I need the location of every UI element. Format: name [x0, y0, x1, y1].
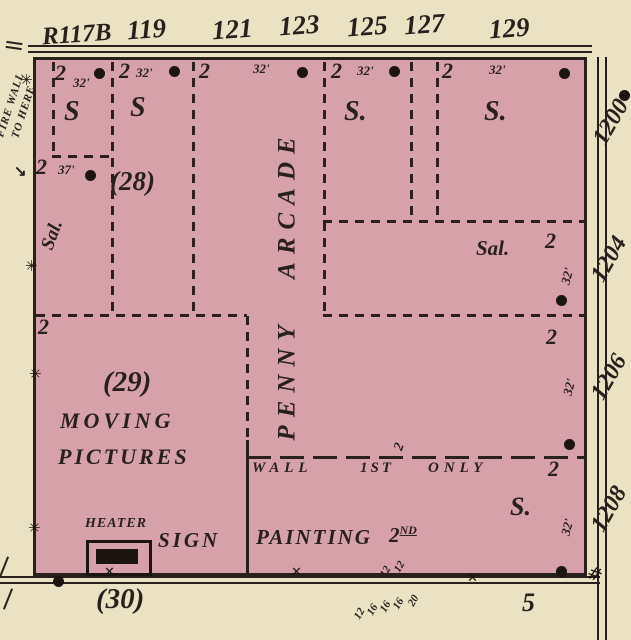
story-count: 2	[55, 62, 66, 84]
depth-dimension: 32'	[73, 76, 90, 89]
arcade-name-label: PENNY ARCADE	[275, 129, 300, 440]
wall-opening-dot	[556, 295, 567, 306]
fire-wall-marker-icon: ✳	[28, 521, 41, 536]
edge-mark	[3, 588, 13, 609]
lot-number: 5	[522, 590, 535, 616]
wall-opening-dot	[389, 66, 400, 77]
street-address: 127	[403, 10, 445, 40]
use-label-moving: MOVING	[60, 410, 174, 432]
store-use-label: S.	[510, 494, 531, 520]
street-address: R117B	[41, 20, 112, 50]
depth-dimension: 32'	[489, 63, 506, 76]
fire-wall-marker-icon: ✕	[291, 566, 302, 579]
partition-line	[410, 62, 413, 222]
wall-note-word: WALL	[252, 461, 313, 476]
wall-opening-dot	[94, 68, 105, 79]
story-count: 2	[548, 458, 559, 480]
street-address: 129	[488, 14, 530, 44]
heater-label: HEATER	[85, 517, 147, 531]
wall-opening-dot	[53, 576, 64, 587]
depth-dimension: 37'	[58, 163, 75, 176]
partition-line	[52, 155, 112, 158]
parcel-number: (29)	[103, 368, 151, 397]
fire-wall-marker-icon: ✕	[467, 572, 478, 585]
partition-line	[36, 314, 247, 317]
store-use-label: S.	[344, 98, 367, 126]
wall-opening-dot	[559, 68, 570, 79]
partition-line	[323, 314, 585, 317]
street-address: 1200	[589, 95, 631, 149]
use-label-pictures: PICTURES	[58, 446, 190, 468]
story-count: 2	[442, 60, 453, 82]
story-count: 2	[199, 60, 210, 82]
dimension: 20	[406, 593, 421, 608]
partition-line	[323, 62, 326, 316]
arrow-down-icon: ↘	[14, 165, 27, 180]
street-address: 1204	[587, 232, 631, 286]
parcel-number: (30)	[96, 585, 144, 614]
street-address: 1206	[587, 350, 631, 404]
dimension: 16	[391, 596, 406, 611]
story-count: 2	[36, 156, 47, 178]
depth-dimension: 32'	[561, 377, 578, 396]
saloon-label: Sal.	[476, 238, 509, 259]
street-address: 125	[346, 12, 388, 42]
story-count: 2	[546, 326, 557, 348]
floor-number: 2	[389, 523, 400, 547]
arcade-partition-line	[246, 316, 249, 442]
top-street-line	[28, 45, 592, 53]
sign-painting-floor: 2ND	[389, 524, 417, 546]
sign-painting-word: SIGN	[158, 530, 220, 551]
story-count: 2	[331, 60, 342, 82]
depth-dimension: 32'	[253, 62, 270, 75]
store-use-label: S	[64, 98, 80, 126]
wall-opening-dot	[556, 566, 567, 577]
wall-note-word: ONLY	[428, 461, 487, 476]
street-address: 123	[278, 11, 320, 41]
wall-opening-dot	[169, 66, 180, 77]
store-use-label: S	[130, 94, 146, 122]
fire-wall-marker-icon: ✳	[25, 259, 38, 274]
edge-mark	[0, 556, 9, 577]
depth-dimension: 32'	[136, 66, 153, 79]
wall-opening-dot	[85, 170, 96, 181]
partition-line	[436, 62, 439, 222]
wall-note-word: 1ST	[360, 461, 394, 476]
story-count: 2	[545, 230, 556, 252]
depth-dimension: 32'	[559, 266, 576, 285]
store-use-label: S.	[484, 98, 507, 126]
floor-ordinal: ND	[400, 523, 417, 537]
wall-opening-dot	[297, 67, 308, 78]
story-count: 2	[38, 316, 49, 338]
street-address: 121	[211, 15, 253, 45]
fire-wall-marker-icon: ✳	[20, 73, 33, 88]
street-address: 119	[126, 15, 167, 45]
partition-line	[323, 220, 585, 223]
party-wall-line	[247, 456, 585, 459]
wall-opening-dot	[619, 90, 630, 101]
left-street-tick	[6, 41, 23, 50]
interior-wall-line	[246, 440, 249, 575]
partition-line	[192, 62, 195, 316]
story-count: 2	[119, 60, 130, 82]
fire-wall-marker-icon: ✳	[29, 367, 42, 382]
depth-dimension: 32'	[559, 517, 576, 536]
sanborn-map-sheet: R117B 119 121 123 125 127 129 1200 1204 …	[0, 0, 631, 640]
depth-dimension: 32'	[357, 64, 374, 77]
parcel-number: (28)	[110, 168, 155, 195]
fire-wall-marker-icon: ✕	[104, 566, 115, 579]
heater-symbol-core	[96, 549, 138, 564]
wall-opening-dot	[564, 439, 575, 450]
street-address: 1208	[587, 482, 631, 536]
sign-painting-word: PAINTING	[256, 527, 372, 548]
